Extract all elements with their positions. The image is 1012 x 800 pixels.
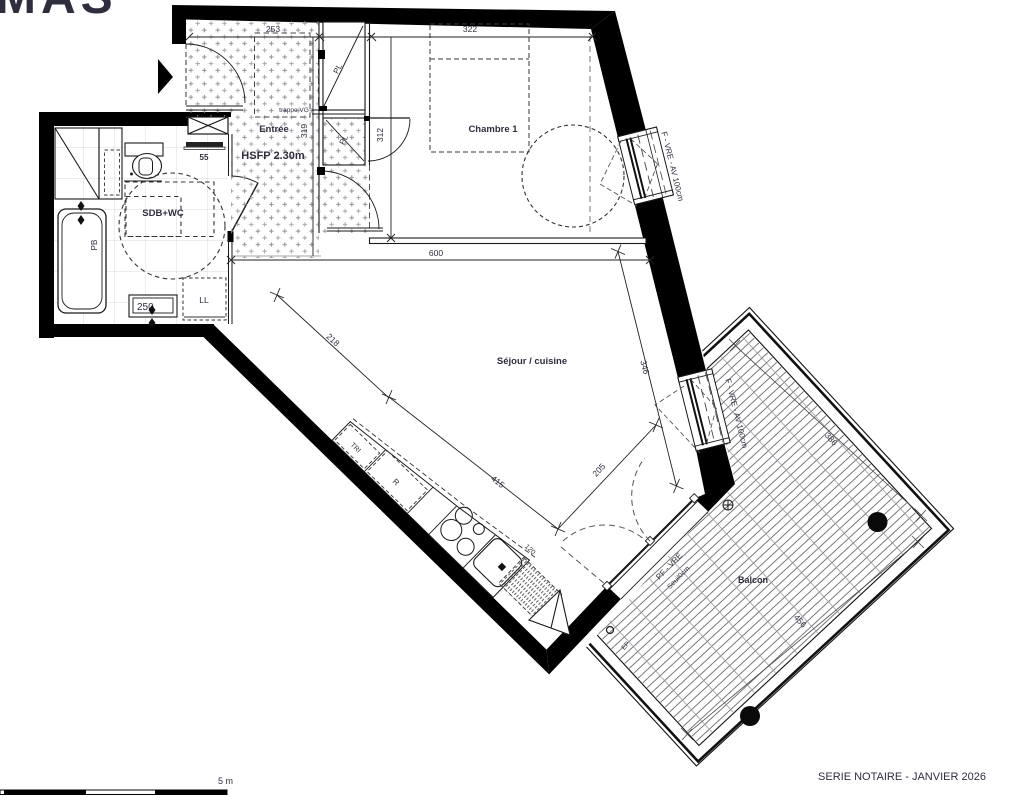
svg-text:LL: LL [199,295,209,305]
svg-text:PB: PB [90,240,99,251]
svg-text:600: 600 [429,248,443,258]
svg-text:trappe VG: trappe VG [279,107,309,114]
svg-text:Balcon: Balcon [738,575,768,585]
svg-text:SERIE NOTAIRE - JANVIER 2026: SERIE NOTAIRE - JANVIER 2026 [818,771,986,783]
svg-text:5 m: 5 m [218,776,233,786]
svg-text:MAS: MAS [0,0,118,24]
svg-text:319: 319 [299,124,309,138]
svg-text:Séjour / cuisine: Séjour / cuisine [497,356,567,367]
svg-text:312: 312 [375,128,385,142]
svg-text:55: 55 [200,153,209,162]
svg-text:Chambre 1: Chambre 1 [468,124,518,135]
svg-text:HSFP 2.30m: HSFP 2.30m [241,150,305,162]
svg-text:SDB+WC: SDB+WC [142,208,184,219]
svg-text:253: 253 [266,24,280,34]
svg-text:Entrée: Entrée [259,124,289,135]
svg-text:322: 322 [463,24,477,34]
